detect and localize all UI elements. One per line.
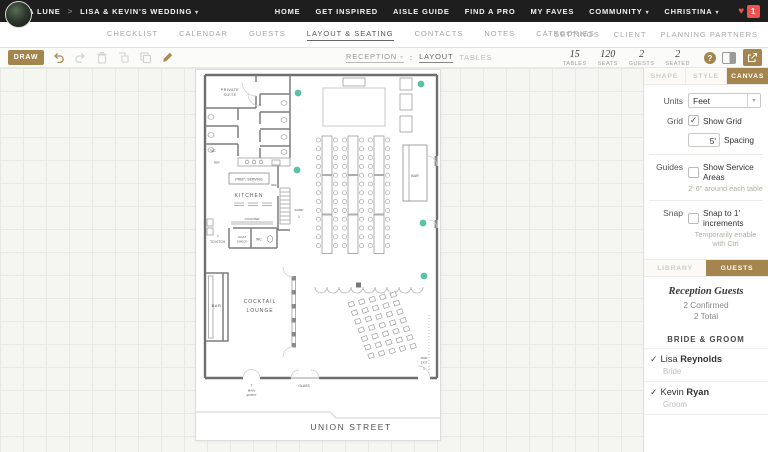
tab-contacts[interactable]: CONTACTS (415, 29, 464, 41)
label-cocktail: COCKTAIL (244, 299, 277, 305)
project-nav: CHECKLIST CALENDAR GUESTS LAYOUT & SEATI… (0, 22, 768, 48)
show-grid-text: Show Grid (703, 116, 742, 126)
layout-canvas[interactable]: PRIVATE SUITE WC REF PREP / SERVING KITC… (0, 68, 643, 452)
tab-canvas[interactable]: CANVAS (727, 68, 768, 84)
help-button[interactable]: ? (704, 52, 716, 64)
panel-tabs: SHAPE STYLE CANVAS (644, 68, 768, 85)
label-kitchen: KITCHEN (235, 193, 264, 199)
link-settings[interactable]: SETTINGS (554, 30, 600, 39)
service-areas-text: Show Service Areas (703, 162, 763, 182)
stat-tables-value: 15 (570, 49, 580, 60)
label-counter: COUNTER (245, 217, 261, 221)
label-ref-a: REF (214, 161, 220, 165)
link-client[interactable]: CLIENT (614, 30, 647, 39)
label-private-suite: PRIVATE (221, 88, 239, 92)
redo-icon[interactable] (74, 51, 87, 64)
chevron-down-icon: ▾ (747, 94, 760, 107)
units-select[interactable]: Feet ▾ (688, 93, 761, 108)
project-menu[interactable]: LISA & KEVIN'S WEDDING (80, 7, 199, 16)
label-coat: COAT (238, 235, 246, 239)
label-private-suite-2: SUITE (223, 93, 236, 97)
label-ref-b: REF (271, 183, 277, 187)
delete-icon[interactable] (96, 51, 108, 64)
top-bar: TO LA LUNE > LISA & KEVIN'S WEDDING HOME… (0, 0, 768, 22)
floor-plan-svg: PRIVATE SUITE WC REF PREP / SERVING KITC… (196, 70, 440, 440)
snap-label: Snap (649, 208, 683, 218)
nav-my-faves[interactable]: MY FAVES (530, 7, 574, 16)
guest-first-name: Kevin (661, 387, 684, 397)
label-ramp: RAMP (295, 208, 304, 212)
tab-guests[interactable]: GUESTS (249, 29, 286, 41)
snap-checkbox[interactable] (688, 213, 699, 224)
grid-spacing-label: Spacing (724, 135, 754, 145)
tab-calendar[interactable]: CALENDAR (179, 29, 228, 41)
top-nav: HOME GET INSPIRED AISLE GUIDE FIND A PRO… (275, 5, 760, 18)
guides-label: Guides (649, 162, 683, 172)
label-coat-2: CHECK (237, 240, 248, 244)
label-bar-right: BAR (411, 174, 419, 178)
notification-badge[interactable]: 1 (747, 5, 760, 18)
stat-seats-label: SEATS (598, 61, 618, 67)
units-label: Units (649, 96, 683, 106)
guest-first-name: Lisa (661, 354, 678, 364)
fixtures (207, 78, 427, 347)
units-value: Feet (689, 94, 747, 107)
draw-button[interactable]: DRAW (8, 50, 44, 65)
stat-guests-label: GUESTS (629, 61, 655, 67)
guest-group-header: BRIDE & GROOM (644, 335, 768, 344)
stat-tables-label: TABLES (563, 61, 587, 67)
label-union-street: UNION STREET (310, 422, 391, 432)
breadcrumb-separator: > (68, 7, 73, 16)
grid-spacing-input[interactable]: 5' (688, 133, 720, 147)
street-boundary (196, 412, 440, 418)
stat-seats-value: 120 (600, 49, 615, 60)
label-bar-left: BAR (212, 303, 222, 308)
layout-toolbar: DRAW RECEPTION : LAYOUT TABLES 15TA (0, 48, 768, 68)
stat-guests-value: 2 (639, 49, 644, 60)
show-grid-checkbox[interactable]: ✓ (688, 115, 699, 126)
tab-guests[interactable]: GUESTS (706, 260, 768, 276)
to-kitch-arrow: ⇧ (217, 234, 220, 239)
export-icon (747, 52, 758, 63)
banquet-tables[interactable] (322, 136, 384, 254)
accordion-wall (315, 287, 423, 293)
label-wc-b: WC (256, 238, 262, 242)
label-wc-a: WC (210, 149, 216, 153)
snap-text: Snap to 1' increments (703, 208, 763, 228)
label-main-entry: MAIN (248, 389, 256, 393)
snap-subtext: Temporarily enable with Ctrl (688, 230, 763, 248)
door-arcs (242, 82, 437, 378)
guests-confirmed: 2 Confirmed (644, 300, 768, 310)
avatar[interactable] (5, 1, 32, 28)
ramp-arrow: ⇩ (298, 215, 301, 219)
fire-exit-arrow: ⇩ (423, 367, 426, 371)
tab-library[interactable]: LIBRARY (644, 260, 706, 276)
layout-stats: 15TABLES 120SEATS 2GUESTS 2SEATED (563, 49, 690, 67)
nav-find-a-pro[interactable]: FIND A PRO (465, 7, 516, 16)
breadcrumb: TO LA LUNE > LISA & KEVIN'S WEDDING (8, 7, 199, 16)
undo-icon[interactable] (52, 51, 65, 64)
guest-row-lisa[interactable]: ✓Lisa Reynolds Bride (644, 348, 768, 381)
tab-layout-seating[interactable]: LAYOUT & SEATING (307, 29, 394, 41)
settings-panel: SHAPE STYLE CANVAS Units Feet ▾ Grid ✓ S… (643, 68, 768, 452)
stat-seated-label: SEATED (665, 61, 690, 67)
tab-style[interactable]: STYLE (686, 68, 728, 84)
label-prep-serving: PREP / SERVING (235, 178, 263, 182)
library-guests-tabs: LIBRARY GUESTS (644, 259, 768, 277)
check-icon: ✓ (650, 387, 658, 397)
label-fire-exit-2: EXIT (421, 361, 428, 365)
floor-plan-sheet[interactable]: PRIVATE SUITE WC REF PREP / SERVING KITC… (196, 70, 440, 440)
nav-home[interactable]: HOME (275, 7, 301, 16)
service-areas-subtext: 2' 6" around each table (688, 184, 763, 193)
guest-role: Bride (663, 367, 760, 376)
nav-user-menu[interactable]: CHRISTINA (664, 7, 719, 16)
label-main-entry-2: ENTRY (246, 393, 256, 397)
guests-total: 2 Total (644, 311, 768, 321)
tab-checklist[interactable]: CHECKLIST (107, 29, 158, 41)
view-tab-tables[interactable]: TABLES (459, 53, 492, 62)
guest-last-name: Reynolds (680, 354, 722, 364)
guests-title: Reception Guests (644, 286, 768, 297)
export-button[interactable] (743, 49, 762, 66)
nav-community-menu[interactable]: COMMUNITY (589, 7, 649, 16)
guest-last-name: Ryan (686, 387, 709, 397)
outer-walls (205, 75, 437, 378)
window-mullions (292, 156, 438, 348)
check-icon: ✓ (650, 354, 658, 364)
grid-label: Grid (649, 116, 683, 126)
notifications[interactable]: ♥ 1 (738, 5, 760, 18)
duplicate-icon[interactable] (139, 51, 152, 64)
panel-toggle-icon[interactable] (722, 52, 736, 64)
heart-icon: ♥ (738, 6, 745, 17)
entry-arrow: ⇧ (250, 383, 253, 388)
link-planning-partners[interactable]: PLANNING PARTNERS (660, 30, 758, 39)
label-glass: GLASS (298, 384, 310, 388)
view-tab-layout[interactable]: LAYOUT (419, 52, 453, 63)
seat-markers[interactable] (294, 81, 428, 280)
stat-seated-value: 2 (675, 49, 680, 60)
guests-section: Reception Guests 2 Confirmed 2 Total BRI… (644, 277, 768, 415)
tab-notes[interactable]: NOTES (484, 29, 515, 41)
view-colon: : (410, 53, 413, 62)
nav-aisle-guide[interactable]: AISLE GUIDE (393, 7, 450, 16)
nav-get-inspired[interactable]: GET INSPIRED (315, 7, 378, 16)
label-cocktail-2: LOUNGE (246, 308, 273, 314)
send-backward-icon[interactable] (117, 51, 130, 64)
guest-row-kevin[interactable]: ✓Kevin Ryan Groom (644, 381, 768, 415)
label-fire-exit: FIRE (421, 356, 428, 360)
tab-shape[interactable]: SHAPE (644, 68, 686, 84)
guest-role: Groom (663, 400, 760, 409)
label-to-kitch: TO KITCH. (210, 240, 226, 244)
ceremony-chairs[interactable] (348, 292, 416, 359)
edit-pencil-icon[interactable] (161, 51, 174, 64)
service-areas-checkbox[interactable] (688, 167, 699, 178)
layout-select[interactable]: RECEPTION (346, 52, 404, 63)
